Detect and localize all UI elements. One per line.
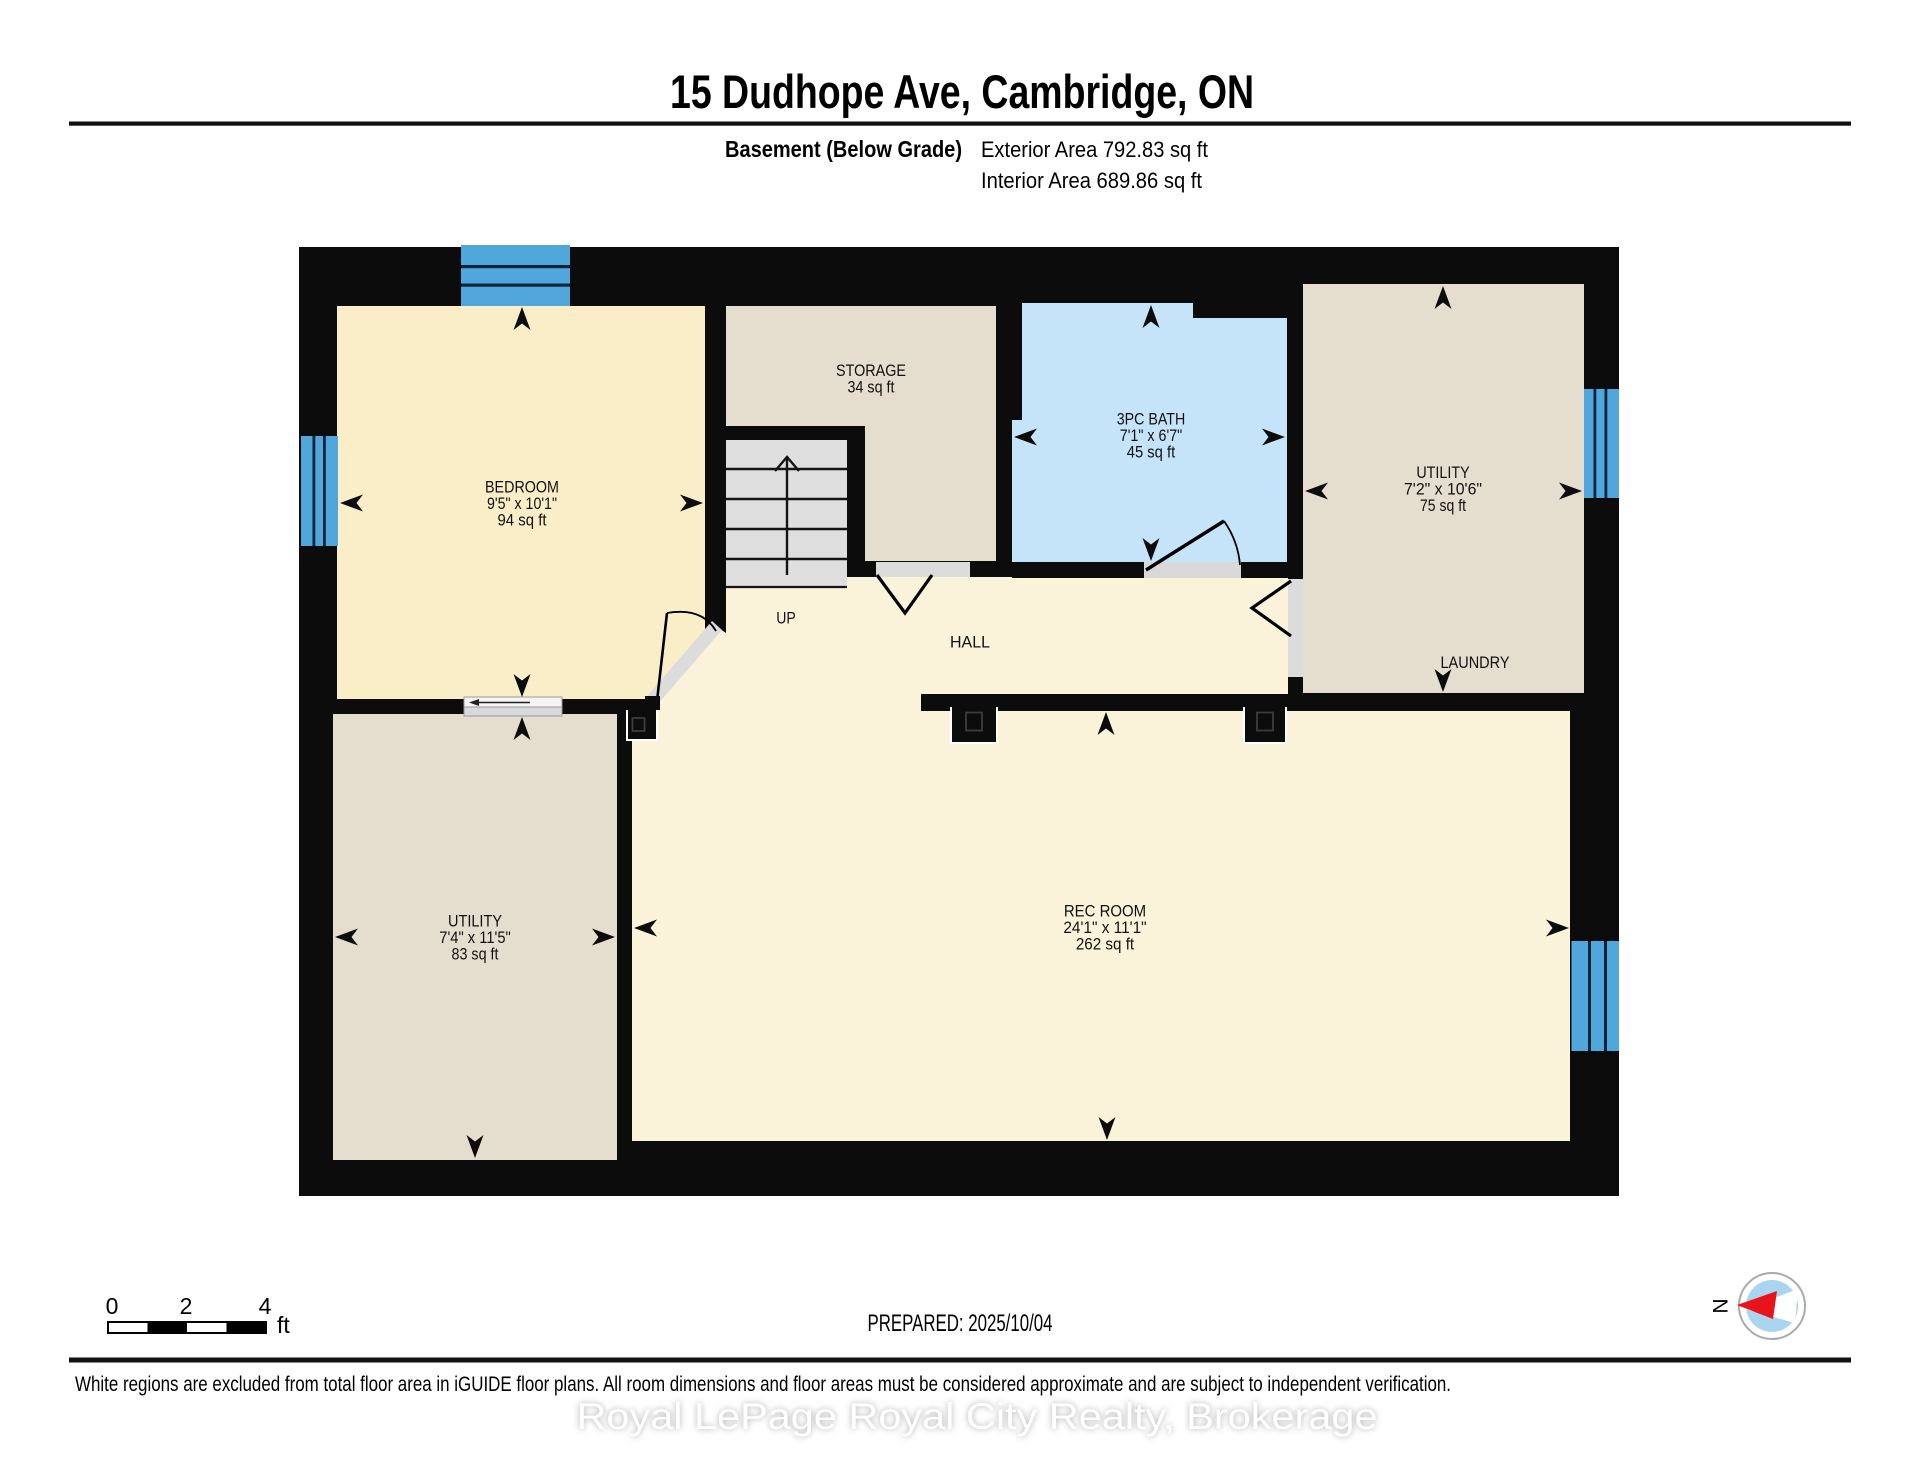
svg-text:Exterior Area 792.83 sq ft: Exterior Area 792.83 sq ft <box>981 137 1209 162</box>
svg-text:94 sq ft: 94 sq ft <box>498 512 547 530</box>
svg-text:ft: ft <box>277 1312 290 1338</box>
svg-text:UP: UP <box>776 610 796 628</box>
svg-text:15 Dudhope Ave, Cambridge, ON: 15 Dudhope Ave, Cambridge, ON <box>670 65 1254 118</box>
svg-text:7'1" x 6'7": 7'1" x 6'7" <box>1120 427 1183 445</box>
svg-text:9'5" x 10'1": 9'5" x 10'1" <box>487 495 557 513</box>
svg-text:STORAGE: STORAGE <box>836 362 906 380</box>
svg-text:45 sq ft: 45 sq ft <box>1127 444 1176 462</box>
svg-text:LAUNDRY: LAUNDRY <box>1441 654 1510 672</box>
svg-text:3PC BATH: 3PC BATH <box>1117 411 1186 429</box>
svg-text:262 sq ft: 262 sq ft <box>1076 936 1135 954</box>
svg-text:UTILITY: UTILITY <box>1416 464 1469 482</box>
svg-text:7'2" x 10'6": 7'2" x 10'6" <box>1404 481 1482 499</box>
svg-text:N: N <box>1710 1298 1733 1313</box>
svg-text:Interior Area 689.86 sq ft: Interior Area 689.86 sq ft <box>981 168 1203 193</box>
svg-text:UTILITY: UTILITY <box>448 913 502 931</box>
svg-text:HALL: HALL <box>950 634 990 652</box>
svg-text:Royal LePage Royal City Realty: Royal LePage Royal City Realty, Brokerag… <box>577 1396 1378 1437</box>
svg-text:4: 4 <box>259 1293 272 1319</box>
svg-text:75 sq ft: 75 sq ft <box>1420 497 1466 515</box>
svg-text:7'4" x 11'5": 7'4" x 11'5" <box>439 929 511 947</box>
svg-text:2: 2 <box>180 1293 193 1319</box>
svg-text:83 sq ft: 83 sq ft <box>452 946 499 964</box>
svg-text:Basement (Below Grade): Basement (Below Grade) <box>725 136 962 162</box>
svg-text:0: 0 <box>106 1293 119 1319</box>
svg-text:REC ROOM: REC ROOM <box>1064 903 1146 921</box>
svg-text:BEDROOM: BEDROOM <box>485 479 559 497</box>
svg-text:24'1" x 11'1": 24'1" x 11'1" <box>1063 919 1146 937</box>
svg-text:White regions are excluded fro: White regions are excluded from total fl… <box>75 1373 1451 1396</box>
svg-text:34 sq ft: 34 sq ft <box>848 379 895 397</box>
svg-text:PREPARED: 2025/10/04: PREPARED: 2025/10/04 <box>868 1310 1053 1337</box>
